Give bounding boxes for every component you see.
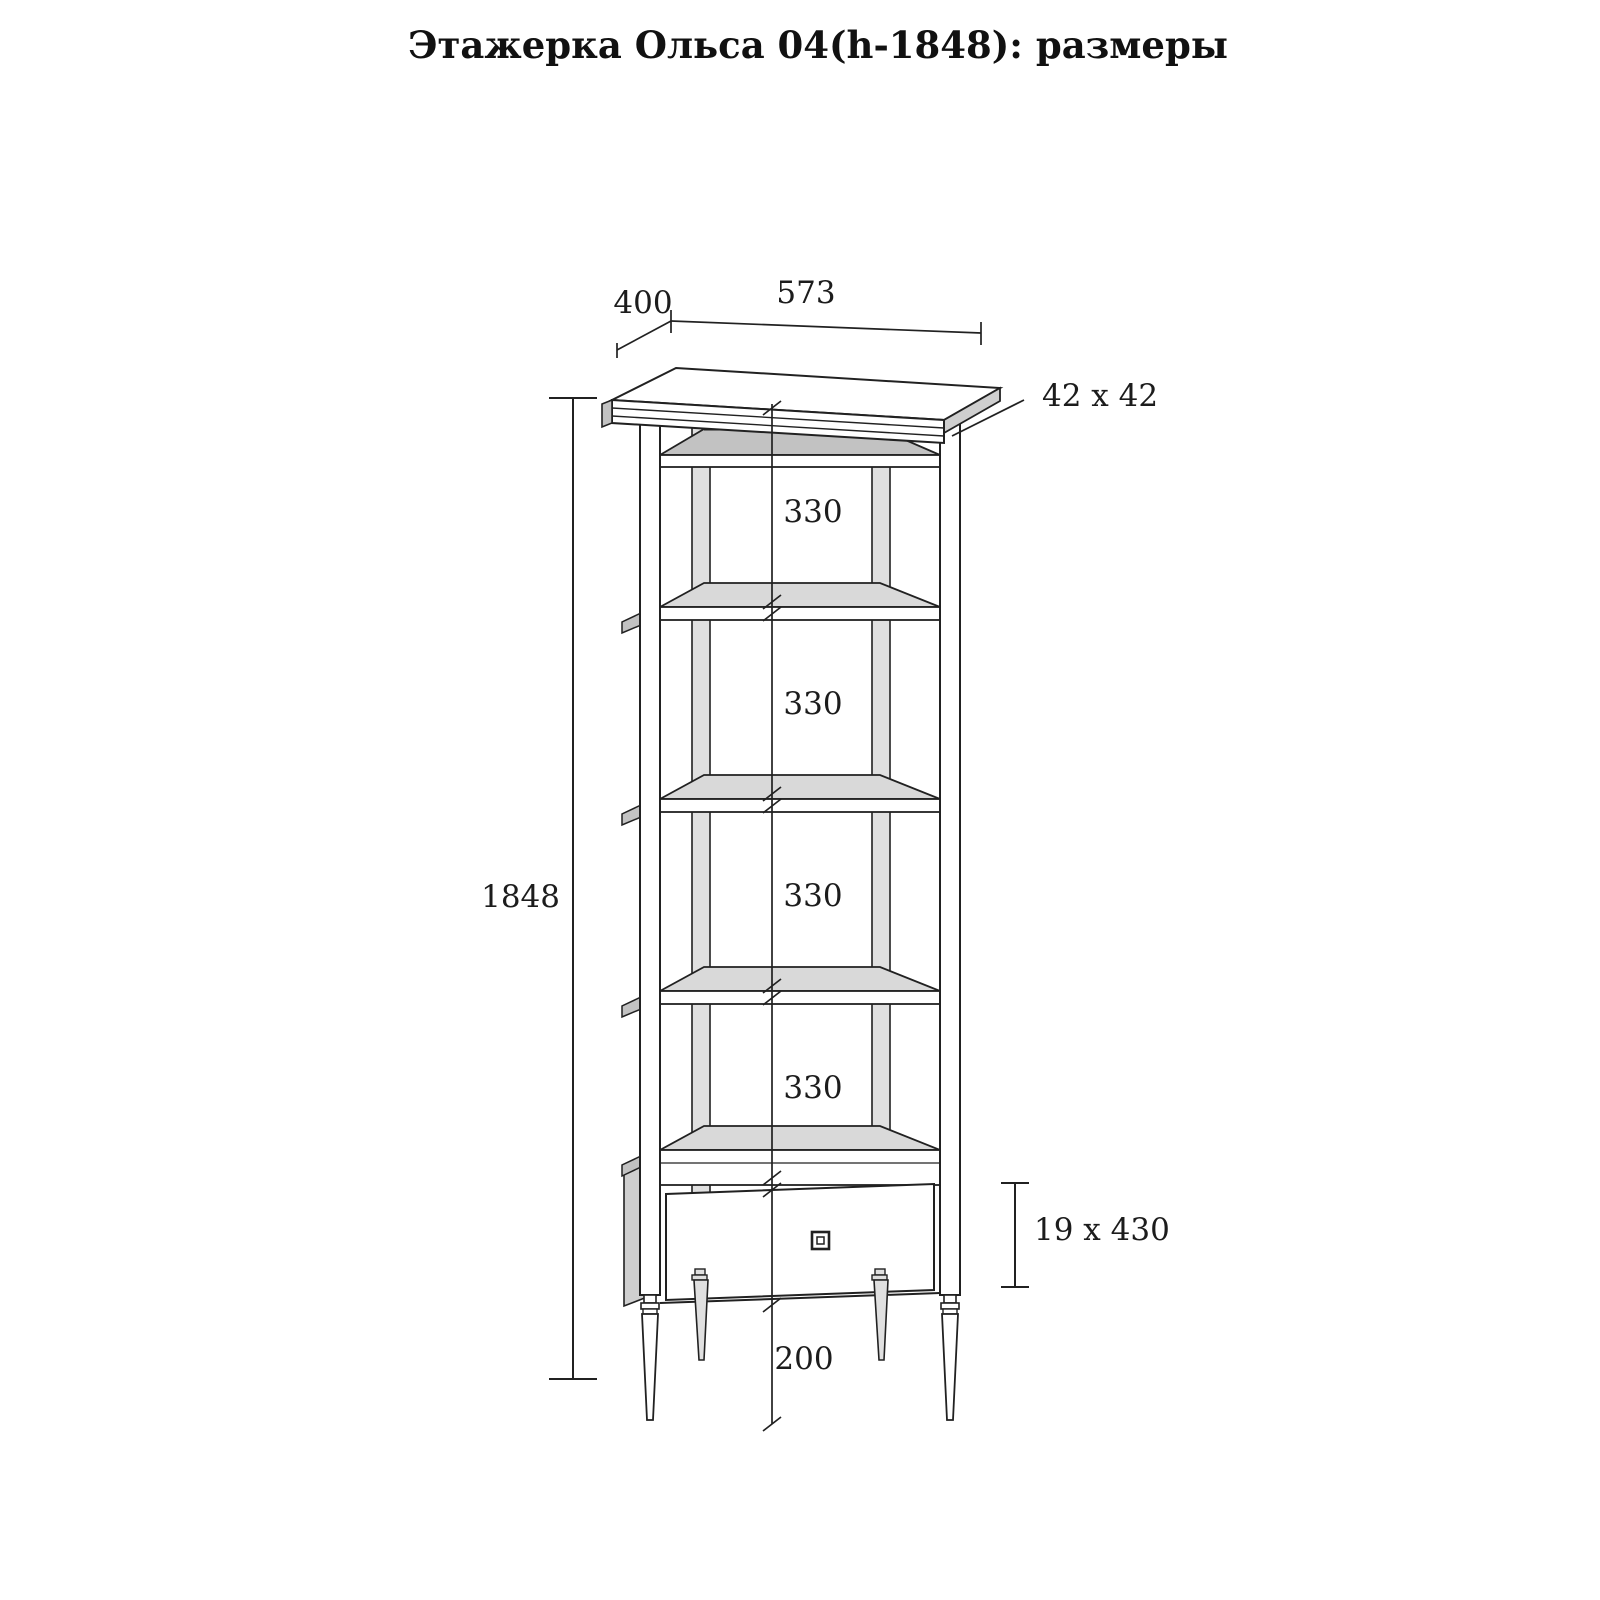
dim-label-width: 573 <box>776 275 835 311</box>
top-board-front-edge <box>660 455 940 467</box>
shelf-top-face <box>660 775 940 799</box>
leg-neck <box>944 1295 956 1303</box>
dim-label-shelf-gap-1: 330 <box>783 494 842 530</box>
dim-label-shelf-gap-3: 330 <box>783 878 842 914</box>
dim-label-post-section: 42 x 42 <box>1042 378 1158 414</box>
height-dimension: 1848 <box>481 398 597 1379</box>
shelf-front-edge <box>660 799 940 812</box>
leg-taper <box>942 1314 958 1420</box>
knob-inner <box>817 1237 824 1244</box>
dim-label-drawer: 19 x 430 <box>1034 1212 1170 1248</box>
dim-label-shelf-gap-2: 330 <box>783 686 842 722</box>
depth-dimension: 400 <box>613 285 672 358</box>
diagram-canvas: 1848 573 400 42 x 42 <box>0 0 1600 1600</box>
dim-label-height: 1848 <box>481 879 560 915</box>
page-title: Этажерка Ольса 04(h-1848): размеры <box>408 23 1228 67</box>
front-right-leg <box>941 1295 959 1420</box>
etagere-dimension-drawing: 1848 573 400 42 x 42 <box>0 0 1600 1600</box>
cornice-left-end <box>602 400 612 427</box>
leg-taper <box>642 1314 658 1420</box>
front-left-post <box>640 420 660 1295</box>
dim-label-leg-height: 200 <box>774 1341 833 1377</box>
dim-line <box>617 321 671 350</box>
cornice <box>602 368 1000 443</box>
leg-neck <box>695 1269 705 1275</box>
front-left-leg <box>641 1295 659 1420</box>
shelf-front-edge <box>660 607 940 620</box>
drawer-box <box>622 1126 940 1306</box>
drawer-dimension: 19 x 430 <box>1001 1183 1170 1287</box>
leg-taper <box>694 1280 708 1360</box>
leg-ring <box>941 1303 959 1309</box>
width-dimension: 573 <box>671 275 981 345</box>
shelf-top-face <box>660 967 940 991</box>
shelf-front-edge <box>660 991 940 1004</box>
rear-right-leg <box>872 1269 888 1360</box>
dim-line <box>671 321 981 333</box>
dim-label-depth: 400 <box>613 285 672 321</box>
leg-taper <box>874 1280 888 1360</box>
box-top-surface <box>660 1126 940 1150</box>
shelf-top-face <box>660 583 940 607</box>
front-right-post <box>940 420 960 1295</box>
rear-left-leg <box>692 1269 708 1360</box>
dim-label-shelf-gap-4: 330 <box>783 1070 842 1106</box>
leg-neck <box>875 1269 885 1275</box>
leg-ring <box>641 1303 659 1309</box>
box-top-front-edge <box>660 1150 940 1185</box>
drawer-knob-icon <box>812 1232 829 1249</box>
leg-neck <box>644 1295 656 1303</box>
